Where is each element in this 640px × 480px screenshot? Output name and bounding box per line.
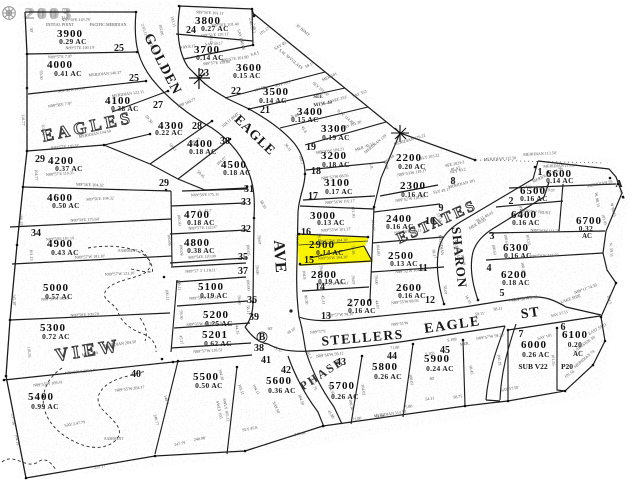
- svg-text:245.30': 245.30': [12, 294, 18, 307]
